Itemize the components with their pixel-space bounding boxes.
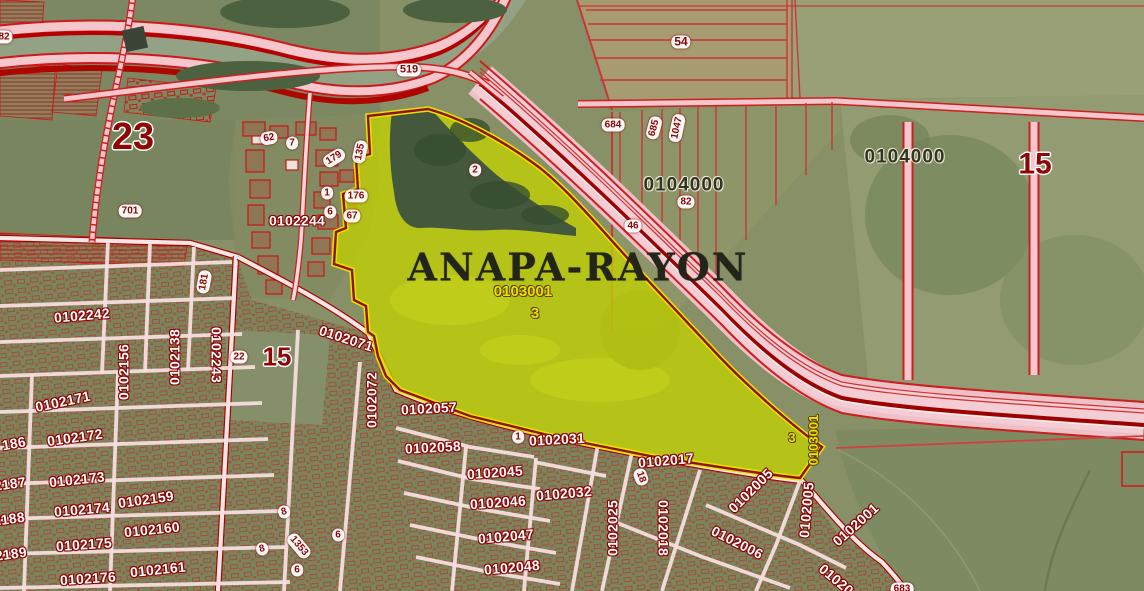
map-label-82: 82	[0, 31, 13, 44]
map-label-1: 1	[512, 431, 524, 444]
region-title: ANAPA-RAYON	[408, 245, 749, 290]
map-label-0102031: 0102031	[529, 431, 586, 449]
map-label-46: 46	[624, 220, 641, 233]
map-label-01020: 01020	[816, 561, 856, 591]
map-label-0102048: 0102048	[483, 558, 540, 578]
map-label-54: 54	[671, 36, 690, 49]
map-label-0102159: 0102159	[117, 488, 175, 511]
map-label-6: 6	[332, 529, 344, 542]
map-label-0102072: 0102072	[364, 372, 379, 428]
map-canvas[interactable]: ANAPA-RAYON 8251954684685104782467016271…	[0, 0, 1144, 591]
map-label-0102032: 0102032	[535, 484, 592, 504]
map-label-684: 684	[602, 119, 625, 132]
map-label-0102174: 0102174	[53, 500, 110, 520]
map-label-67: 67	[343, 210, 360, 223]
map-label-0102006: 0102006	[709, 523, 766, 562]
map-label-135: 135	[351, 140, 368, 165]
map-label-1: 1	[321, 187, 333, 200]
map-label-519: 519	[397, 64, 421, 77]
map-label-181: 181	[196, 270, 213, 295]
map-label-0102242: 0102242	[53, 306, 110, 326]
map-label-15: 15	[263, 343, 292, 372]
map-label-2: 2	[469, 164, 481, 177]
map-label-02188: 02188	[0, 510, 26, 531]
label-layer: ANAPA-RAYON 8251954684685104782467016271…	[0, 0, 1144, 591]
map-label-0102046: 0102046	[470, 493, 527, 512]
map-label-0102005: 0102005	[797, 481, 817, 538]
map-label-0102047: 0102047	[477, 527, 534, 547]
map-label-0102175: 0102175	[56, 535, 113, 554]
map-label-701: 701	[119, 205, 142, 218]
map-label-1047: 1047	[668, 113, 687, 143]
map-label-3: 3	[788, 431, 795, 445]
map-label-3: 3	[531, 306, 539, 323]
map-label-0102005: 0102005	[726, 466, 776, 516]
map-label-15: 15	[1018, 148, 1051, 181]
map-label-0102025: 0102025	[605, 500, 620, 556]
map-label-7: 7	[286, 137, 298, 150]
map-label-02187: 02187	[0, 475, 27, 496]
map-label-0102173: 0102173	[48, 469, 105, 490]
map-label-0102138: 0102138	[167, 329, 182, 385]
map-label-0102156: 0102156	[116, 344, 131, 400]
map-label-186: 186	[1, 434, 27, 453]
map-label-8: 8	[277, 504, 292, 520]
map-label-0102161: 0102161	[129, 559, 186, 580]
map-label-0102071: 0102071	[317, 323, 375, 355]
map-label-1353: 1353	[285, 531, 313, 561]
map-label-179: 179	[321, 146, 347, 169]
map-label-0102018: 0102018	[655, 500, 670, 556]
map-label-0104000: 0104000	[865, 148, 946, 169]
map-label-6: 6	[291, 564, 303, 577]
map-label-23: 23	[112, 117, 154, 159]
map-label-0102244: 0102244	[269, 213, 325, 228]
map-label-0102176: 0102176	[60, 569, 117, 588]
map-label-176: 176	[345, 190, 368, 203]
map-label-22: 22	[230, 351, 247, 364]
map-label-0104000: 0104000	[644, 176, 725, 197]
map-label-0102243: 0102243	[208, 327, 223, 383]
map-label-0102160: 0102160	[123, 519, 180, 540]
map-label-683: 683	[891, 583, 914, 591]
map-label-0102045: 0102045	[467, 463, 524, 482]
map-label-8: 8	[255, 541, 270, 557]
map-label-62: 62	[259, 130, 278, 146]
map-label-82: 82	[677, 196, 694, 209]
map-label-0102171: 0102171	[34, 389, 92, 416]
map-label-6: 6	[324, 206, 336, 219]
map-label-0103001: 0103001	[494, 284, 552, 301]
map-label-0102017: 0102017	[637, 451, 694, 471]
map-label-0102001: 0102001	[830, 501, 882, 550]
map-label-0102057: 0102057	[401, 400, 458, 418]
map-label-0102058: 0102058	[405, 439, 462, 457]
map-label-0102172: 0102172	[46, 426, 104, 449]
map-label-0103001: 0103001	[807, 415, 821, 466]
map-label-02189: 02189	[0, 545, 28, 566]
map-label-685: 685	[645, 115, 663, 140]
